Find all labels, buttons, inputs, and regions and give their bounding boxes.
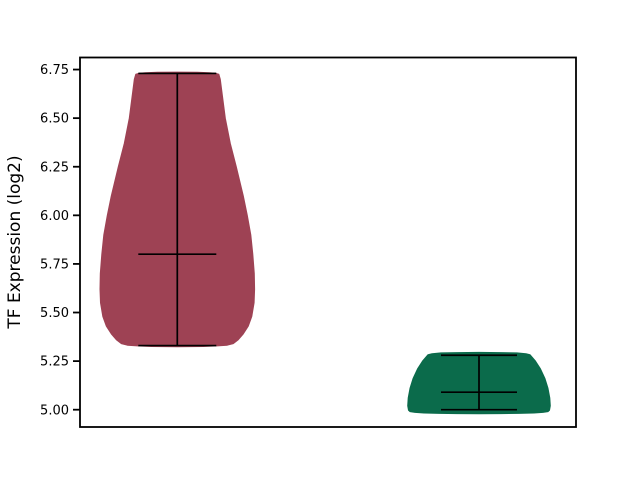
y-tick-label: 5.00	[40, 403, 69, 418]
y-tick-label: 5.50	[40, 306, 69, 321]
y-tick-label: 6.00	[40, 209, 69, 224]
y-axis-label: TF Expression (log2)	[5, 155, 25, 329]
y-tick-label: 5.75	[40, 257, 69, 272]
y-tick-label: 6.50	[40, 112, 69, 127]
chart-canvas: TF Expression (log2) 6.756.506.256.005.7…	[0, 0, 640, 480]
y-tick-label: 5.25	[40, 355, 69, 370]
violin-plot-figure: TF Expression (log2) 6.756.506.256.005.7…	[0, 0, 640, 480]
y-tick-label: 6.75	[40, 63, 69, 78]
y-tick-label: 6.25	[40, 160, 69, 175]
